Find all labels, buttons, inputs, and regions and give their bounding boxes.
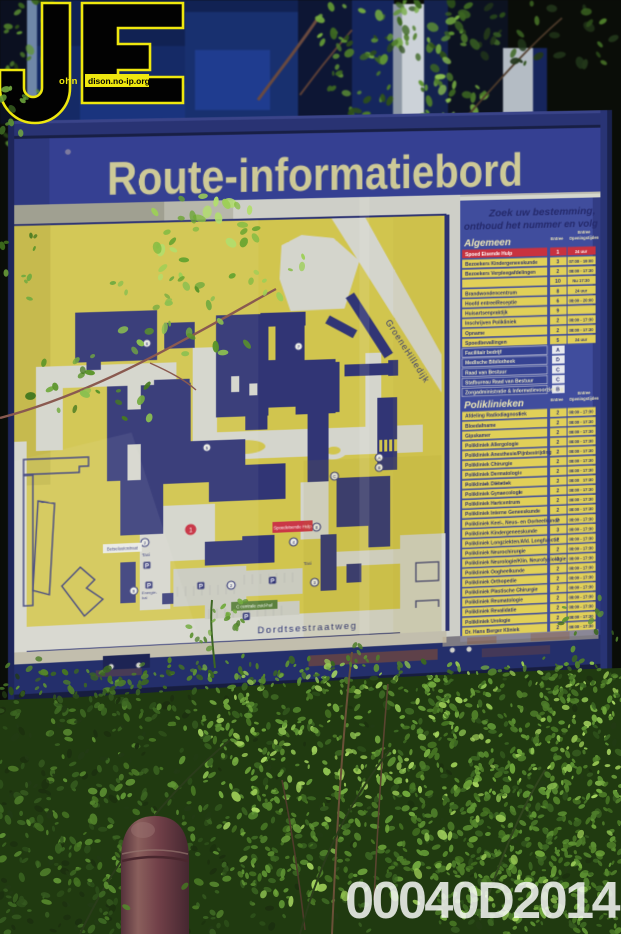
svg-text:00040D2014: 00040D2014	[345, 872, 620, 930]
svg-text:ohn: ohn	[59, 76, 78, 87]
svg-text:dison.no-ip.org: dison.no-ip.org	[88, 76, 150, 86]
